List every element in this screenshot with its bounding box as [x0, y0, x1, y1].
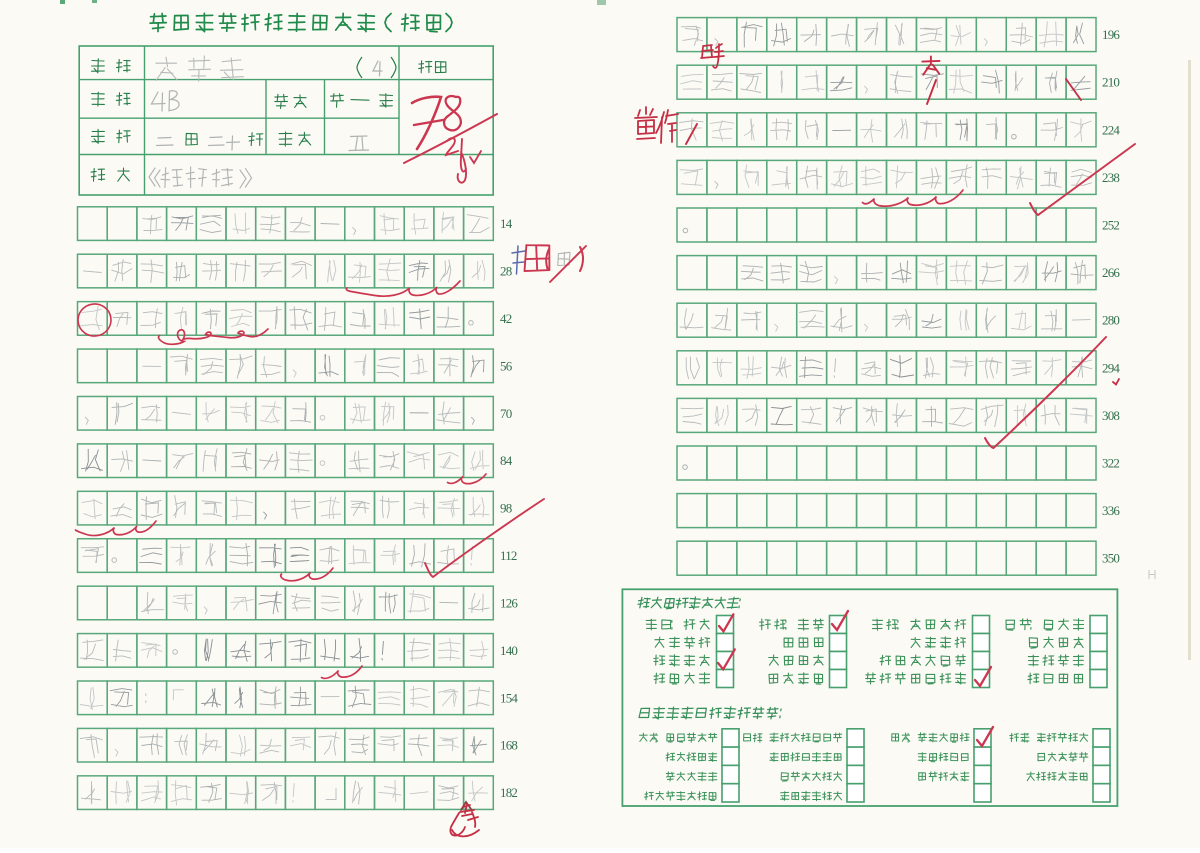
svg-text:140: 140	[500, 643, 517, 658]
svg-text:266: 266	[1102, 265, 1120, 280]
svg-text:294: 294	[1102, 360, 1120, 375]
svg-text:308: 308	[1102, 408, 1119, 423]
svg-text:210: 210	[1102, 75, 1119, 90]
svg-text:168: 168	[500, 738, 517, 753]
svg-text:252: 252	[1102, 218, 1119, 233]
svg-text:350: 350	[1102, 551, 1119, 566]
svg-text:336: 336	[1102, 503, 1120, 518]
svg-text:56: 56	[500, 358, 513, 373]
svg-text:28: 28	[500, 264, 512, 279]
svg-text:70: 70	[500, 406, 512, 421]
svg-text:224: 224	[1102, 122, 1120, 137]
svg-text:322: 322	[1102, 456, 1119, 471]
svg-text:126: 126	[500, 596, 518, 611]
svg-text:154: 154	[500, 690, 518, 705]
svg-text:98: 98	[500, 501, 512, 516]
svg-text:112: 112	[500, 548, 517, 563]
svg-text:238: 238	[1102, 170, 1119, 185]
svg-text:42: 42	[500, 311, 512, 326]
svg-text:280: 280	[1102, 313, 1119, 328]
svg-text:196: 196	[1102, 27, 1120, 42]
svg-text:84: 84	[500, 453, 513, 468]
svg-text:182: 182	[500, 785, 517, 800]
svg-text:14: 14	[500, 216, 513, 231]
